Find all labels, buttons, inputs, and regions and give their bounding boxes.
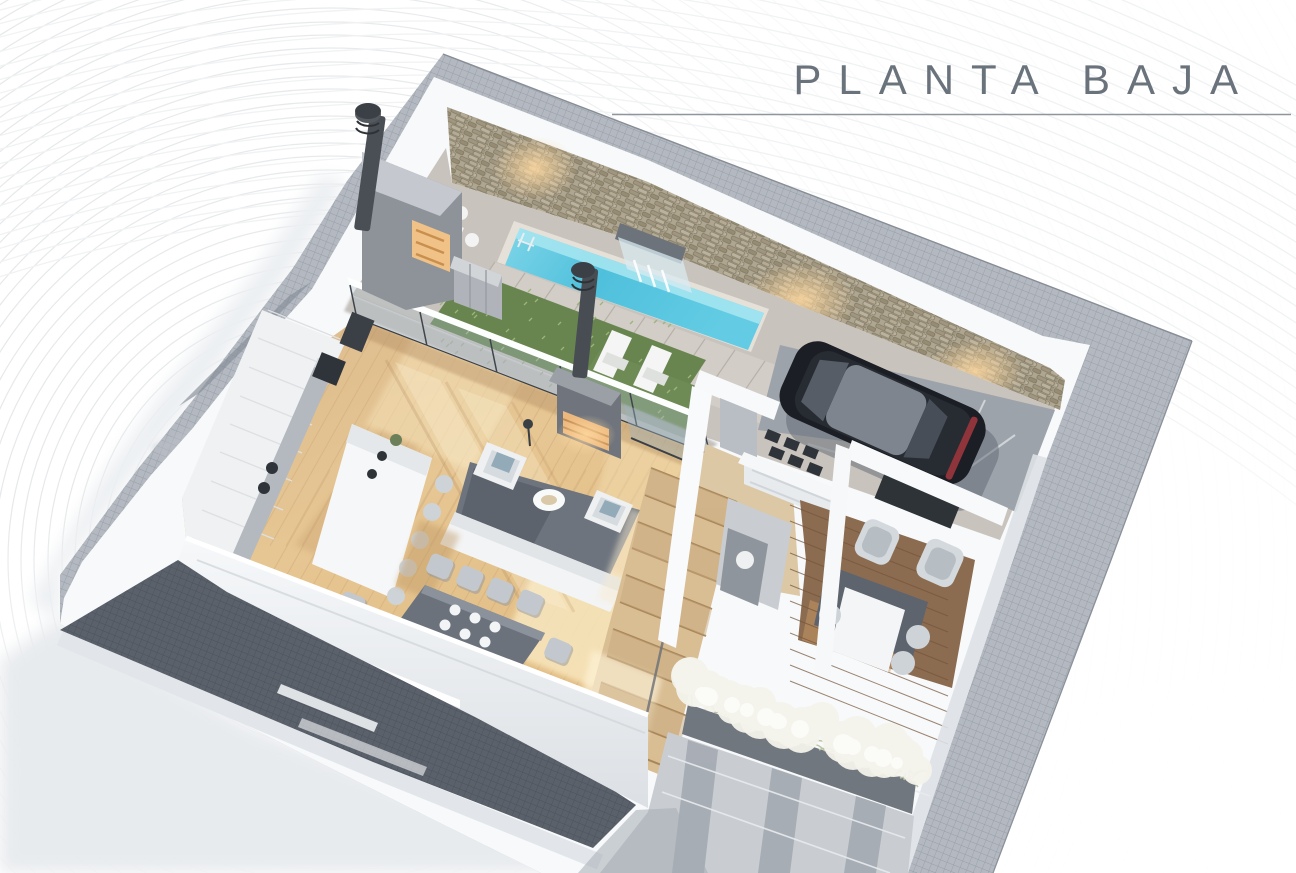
- svg-text:PLANTA BAJA: PLANTA BAJA: [793, 56, 1255, 103]
